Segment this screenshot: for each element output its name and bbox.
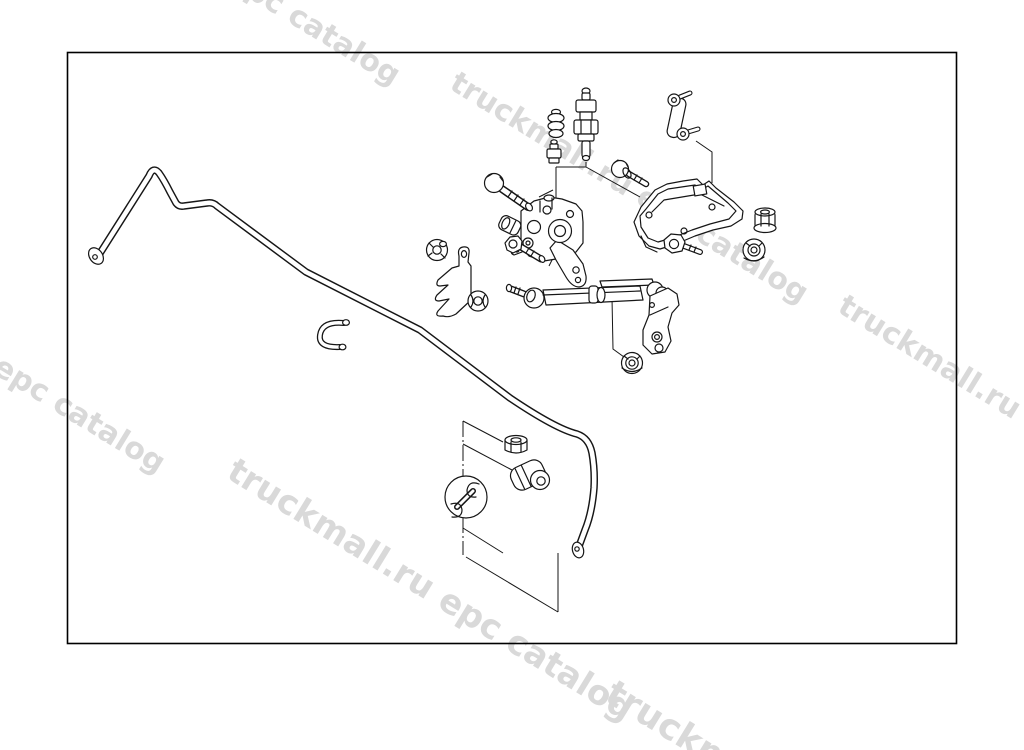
- diagram-border: [68, 53, 957, 644]
- watermark-layer: truckmall.ru epc catalog truckmall.ru ep…: [0, 0, 1024, 750]
- parts-diagram: truckmall.ru epc catalog truckmall.ru ep…: [0, 0, 1024, 750]
- part-drawing-59-nut: [427, 240, 448, 261]
- watermark-text: truckmall.ru epc catalog: [220, 451, 640, 730]
- part-drawing-38-bushing: [468, 291, 488, 311]
- part-drawing-89-nut-lower: [743, 239, 765, 261]
- part-drawing-77-bellows: [548, 109, 564, 137]
- part-drawing-50-nut: [622, 353, 643, 374]
- part-drawing-75-bolt: [485, 174, 534, 213]
- watermark-text: truckmall.ru epc catalog: [36, 0, 407, 93]
- part-drawing-89-nut-upper: [754, 208, 776, 233]
- part-drawing-8-bushing: [508, 457, 550, 493]
- watermark-text: truckmall.ru epc catalog: [832, 288, 1024, 534]
- part-drawing-35-clip: [320, 320, 350, 350]
- part-drawing-23-kit: [445, 476, 487, 518]
- watermark-text: truckmall.ru epc catalog: [598, 673, 1024, 750]
- part-drawing-80-plug: [497, 214, 522, 237]
- part-drawing-86-link: [666, 93, 698, 140]
- watermark-text: truckmall.ru epc catalog: [0, 235, 172, 481]
- part-drawing-20-nut: [505, 436, 527, 454]
- part-drawings: [86, 88, 776, 559]
- part-drawing-44-cylinder: [506, 279, 679, 354]
- catalog-page: truckmall.ru epc catalog truckmall.ru ep…: [0, 0, 1024, 750]
